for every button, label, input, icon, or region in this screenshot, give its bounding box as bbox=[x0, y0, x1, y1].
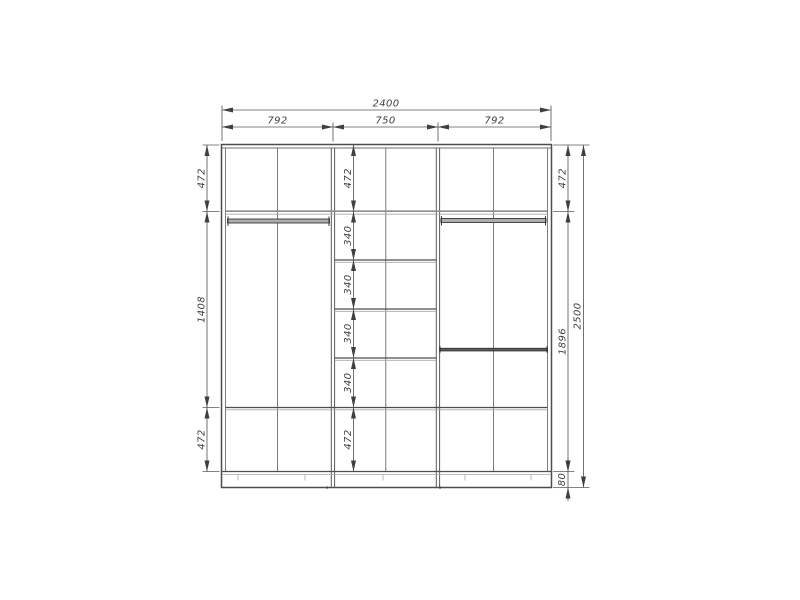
dim-center-5: 340 bbox=[343, 373, 354, 393]
dim-right-middle: 1896 bbox=[558, 328, 569, 355]
technical-drawing-page: 2400 792 750 792 472 1408 472 472 340 34… bbox=[0, 0, 800, 600]
dim-section-left: 792 bbox=[267, 116, 287, 127]
thick-shelf bbox=[440, 348, 548, 351]
dim-section-right: 792 bbox=[484, 116, 504, 127]
dim-right-plinth: 80 bbox=[557, 473, 568, 487]
dim-overall-height: 2500 bbox=[573, 302, 584, 329]
wardrobe-elevation-drawing: 2400 792 750 792 472 1408 472 472 340 34… bbox=[0, 0, 800, 600]
dim-center-6: 472 bbox=[343, 429, 354, 449]
dim-left-bottom: 472 bbox=[197, 429, 208, 449]
base-plinth bbox=[222, 472, 551, 489]
rod-bar bbox=[228, 219, 330, 223]
dim-overall-width: 2400 bbox=[372, 99, 399, 110]
dim-left-middle: 1408 bbox=[197, 296, 208, 323]
dim-section-center: 750 bbox=[375, 116, 395, 127]
rod-bar bbox=[441, 219, 546, 223]
hanging-rod-left bbox=[228, 217, 330, 227]
dim-center-1: 472 bbox=[343, 168, 354, 188]
wardrobe-structure bbox=[222, 145, 552, 489]
dim-center-2: 340 bbox=[343, 226, 354, 246]
dim-center-4: 340 bbox=[343, 323, 354, 343]
dimension-annotations: 2400 792 750 792 472 1408 472 472 340 34… bbox=[197, 99, 590, 502]
dim-center-3: 340 bbox=[343, 274, 354, 294]
dim-right-top: 472 bbox=[558, 168, 569, 188]
carcass-outline bbox=[222, 145, 552, 488]
dim-left-top: 472 bbox=[197, 168, 208, 188]
